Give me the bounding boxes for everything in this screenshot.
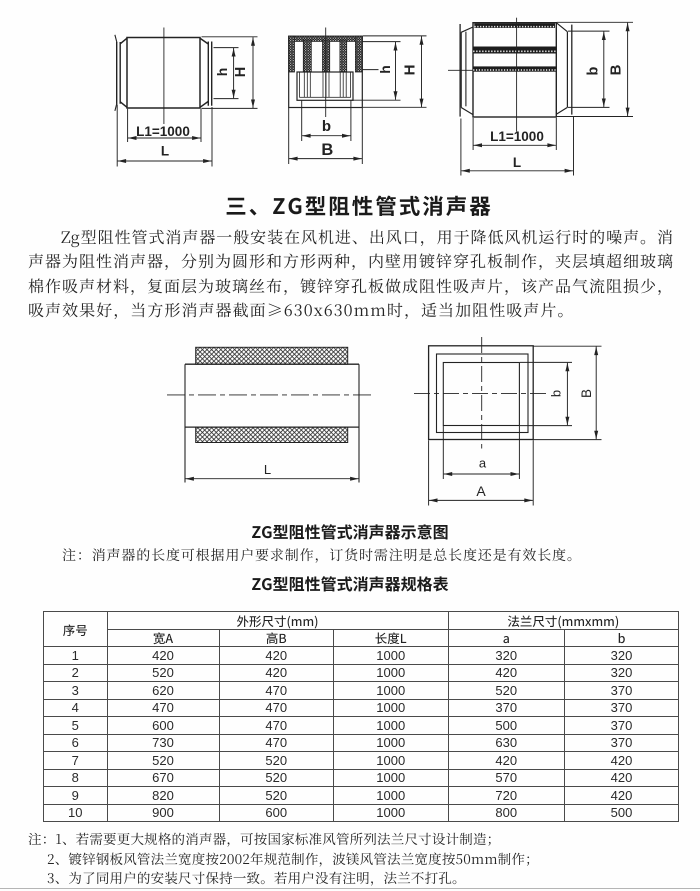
svg-text:B: B xyxy=(608,64,625,75)
svg-text:L1=1000: L1=1000 xyxy=(136,124,190,139)
svg-text:a: a xyxy=(479,456,487,471)
svg-text:L: L xyxy=(264,462,271,477)
svg-text:H: H xyxy=(233,67,249,77)
svg-text:B: B xyxy=(579,389,594,398)
svg-text:H: H xyxy=(402,65,419,76)
svg-text:b: b xyxy=(586,66,602,75)
svg-text:L: L xyxy=(513,155,521,170)
svg-text:b: b xyxy=(322,118,331,135)
svg-text:L: L xyxy=(161,144,169,159)
svg-text:h: h xyxy=(377,65,393,74)
svg-text:h: h xyxy=(214,68,230,77)
svg-text:b: b xyxy=(549,390,564,397)
svg-text:L1=1000: L1=1000 xyxy=(490,129,544,144)
svg-text:A: A xyxy=(476,483,486,499)
svg-text:B: B xyxy=(321,141,333,159)
